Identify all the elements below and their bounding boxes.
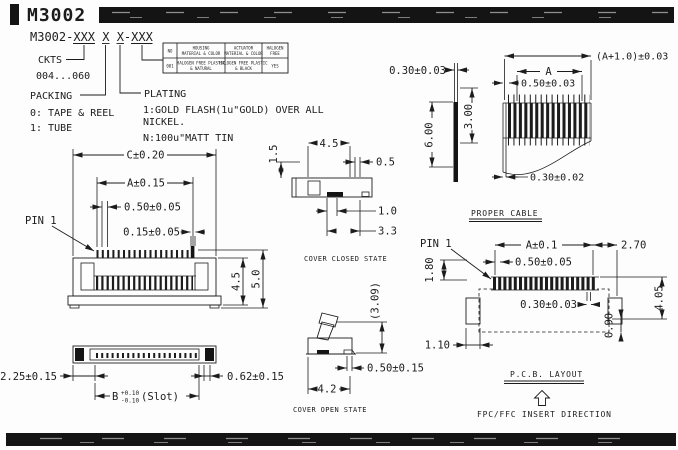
table-actuator-value-2: & BLACK [235, 66, 252, 71]
bottom-dim-end-width: 2.25±0.15 [0, 371, 57, 383]
table-halogen-header-1: HALOGEN [267, 46, 284, 51]
cover-open-body [308, 338, 352, 354]
table-actuator-header-2: MATERIAL & COLOR [224, 51, 263, 56]
table-housing-value-2: & NATURAL [190, 66, 212, 71]
plating-note-3: N:100u"MATT TIN [143, 133, 233, 144]
pcb-layout-caption: P.C.B. LAYOUT [510, 370, 583, 379]
front-view: C±0.20 A±0.15 0.50±0.05 0.15±0.05 PIN 1 [25, 149, 268, 308]
cable-dim-conductor: 0.30±0.02 [530, 173, 584, 184]
materials-table: NO HOUSING MATERIAL & COLOR ACTUATOR MAT… [163, 43, 288, 73]
front-dim-height-total: 5.0 [251, 270, 263, 289]
redacted-footer-band [6, 433, 676, 446]
title-block-marker [10, 4, 19, 25]
cable-dim-a: A [545, 66, 552, 78]
front-dim-a: A±0.15 [127, 178, 165, 190]
engineering-drawing: M3002 M3002-XXX X X-XXX CKTS 004...060 P… [0, 0, 678, 450]
redacted-header-band [99, 7, 674, 23]
cover-closed-dim-top: 4.5 [320, 138, 339, 150]
plating-note-1: 1:GOLD FLASH(1u"GOLD) OVER ALL [143, 105, 324, 116]
plating-label: PLATING [144, 89, 186, 100]
insert-direction-arrow-icon [535, 391, 550, 406]
cover-closed-dim-right: 0.5 [376, 157, 395, 169]
table-col1-value: 001 [166, 64, 174, 69]
cover-open-dim-height: (3.09) [370, 282, 382, 320]
cover-open-view: (3.09) 0.50±0.15 4.2 COVER OPEN STATE [293, 282, 424, 414]
front-dim-c: C±0.20 [127, 150, 165, 162]
table-housing-header-2: MATERIAL & COLOR [182, 51, 221, 56]
cable-break-line [503, 141, 591, 175]
cover-open-lever-cap [319, 313, 338, 327]
bottom-dim-slot-b: B [112, 391, 118, 403]
bottom-dim-slot-plus: +0.10 [121, 390, 139, 397]
header-bar: M3002 [10, 4, 674, 26]
front-base-plate [68, 296, 221, 305]
pcb-dim-end: 2.70 [621, 240, 646, 252]
ckts-label: CKTS [38, 55, 62, 66]
pcb-dim-a: A±0.1 [526, 240, 558, 252]
pcb-dim-pad-length: 1.80 [424, 257, 436, 282]
pcb-pin1-label: PIN 1 [420, 238, 452, 250]
pcb-dim-pitch: 0.50±0.05 [515, 257, 572, 269]
table-halogen-value: YES [271, 64, 279, 69]
pcb-dim-pad-width: 0.30±0.03 [520, 299, 577, 311]
table-col1-header: NO [168, 49, 173, 54]
front-dim-pin-width: 0.15±0.05 [123, 227, 180, 239]
cable-dim-thickness: 0.30±0.03 [389, 65, 446, 77]
table-halogen-header-2: FREE [270, 51, 280, 56]
proper-cable-caption: PROPER CABLE [471, 209, 538, 218]
bottom-dim-tail: 0.62±0.15 [227, 371, 284, 383]
cover-open-caption: COVER OPEN STATE [293, 406, 367, 414]
part-number: M3002-XXX X X-XXX [30, 30, 154, 44]
packing-option-2: 1: TUBE [30, 123, 72, 134]
cable-dim-overall: (A+1.0)±0.03 [596, 52, 668, 63]
cover-closed-dim-offset: 1.0 [378, 206, 397, 218]
cable-stiffener-bar [454, 102, 459, 182]
cable-front-view: (A+1.0)±0.03 A 0.50±0.03 0.30±0.02 [492, 52, 668, 184]
packing-option-1: 0: TAPE & REEL [30, 108, 114, 119]
cover-closed-view: 1.5 4.5 0.5 1.0 3.3 COVER CLOSED STATE [268, 138, 397, 263]
bottom-view: 2.25±0.15 0.62±0.15 B +0.10 -0.10 (Slot) [0, 346, 284, 405]
front-pin1-label: PIN 1 [25, 215, 57, 227]
pcb-anchor-pad-left [466, 298, 480, 324]
front-dim-pitch: 0.50±0.05 [124, 202, 181, 214]
cover-open-dim-gap: 0.50±0.15 [367, 363, 424, 375]
table-actuator-header-1: ACTUATOR [234, 46, 254, 51]
pcb-pin1-leader [451, 249, 491, 279]
cover-closed-dim-left: 1.5 [268, 145, 280, 164]
pcb-dim-090: 0.90 [604, 313, 616, 338]
page-title: M3002 [27, 5, 86, 26]
table-actuator-value-1: HALOGEN FREE PLASTIC [219, 61, 268, 66]
front-dim-height-body: 4.5 [231, 272, 243, 291]
plating-note-2: NICKEL. [143, 117, 185, 128]
pcb-dim-110: 1.10 [425, 340, 450, 352]
ckts-leader [66, 45, 84, 60]
cover-closed-caption: COVER CLOSED STATE [304, 255, 387, 263]
cable-dim-exposed: 6.00 [424, 122, 436, 147]
footer-bar [6, 433, 676, 446]
pcb-layout-view: PIN 1 A±0.1 2.70 0.50±0.05 1.80 0.30±0.0… [420, 238, 667, 419]
table-housing-header-1: HOUSING [193, 46, 210, 51]
cover-closed-dim-depth: 3.3 [378, 226, 397, 238]
insert-direction-caption: FPC/FFC INSERT DIRECTION [477, 410, 612, 419]
cable-dim-pitch: 0.50±0.03 [521, 79, 575, 90]
packing-label: PACKING [30, 91, 72, 102]
table-housing-value-1: HALOGEN FREE PLASTIC [177, 61, 226, 66]
plating-leader [120, 45, 141, 93]
front-highlighted-pin [191, 246, 195, 258]
pcb-dim-depth: 4.05 [654, 285, 666, 310]
bottom-dim-slot-minus: -0.10 [121, 398, 139, 405]
bottom-dim-slot-suffix: (Slot) [141, 391, 179, 403]
ckts-range: 004...060 [36, 71, 90, 82]
table-leader [142, 45, 163, 60]
cable-dim-stiffener: 3.00 [463, 104, 475, 129]
cover-open-dim-width: 4.2 [318, 384, 337, 396]
drawing-sheet: M3002 M3002-XXX X X-XXX CKTS 004...060 P… [0, 0, 678, 450]
